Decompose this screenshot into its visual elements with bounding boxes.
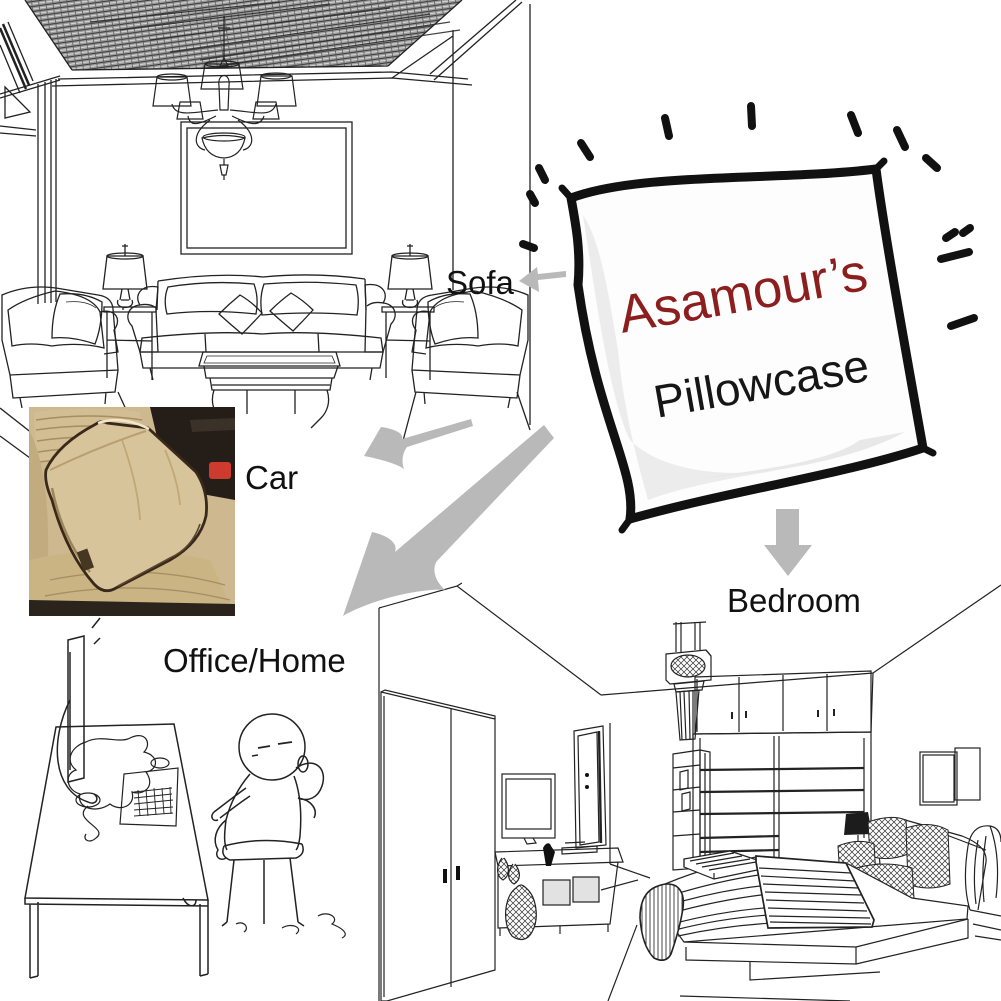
- svg-text:Car: Car: [245, 459, 298, 496]
- svg-text:Office/Home: Office/Home: [163, 642, 346, 679]
- svg-text:Bedroom: Bedroom: [727, 582, 861, 619]
- svg-text:Sofa: Sofa: [446, 264, 515, 301]
